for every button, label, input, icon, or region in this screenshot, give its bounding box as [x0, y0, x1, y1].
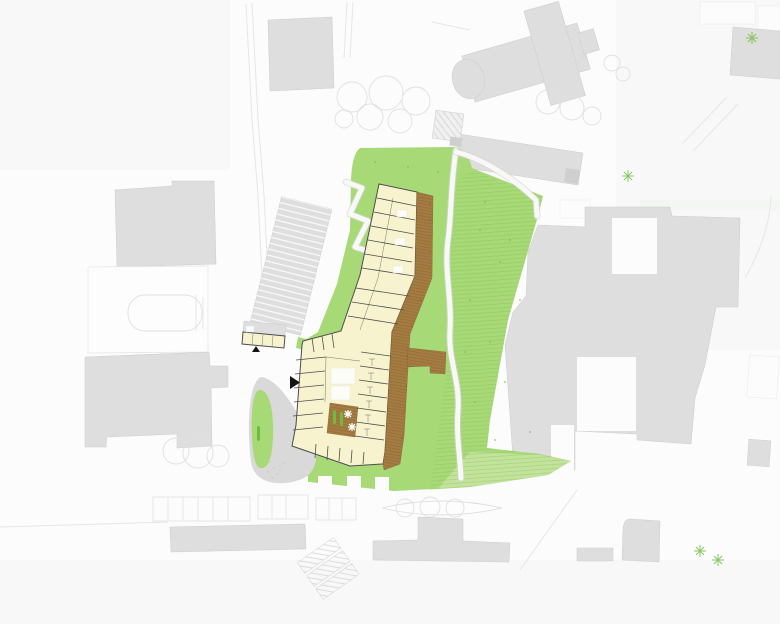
- parking-row: [153, 497, 250, 521]
- context-building: [115, 181, 216, 267]
- tree-icon: [388, 109, 412, 133]
- hall-patch: [331, 368, 355, 384]
- east-complex-courtyard: [612, 218, 657, 274]
- tree-icon: [560, 96, 584, 120]
- road-line: [344, 2, 353, 58]
- annex-building: [242, 321, 286, 348]
- parking-row: [258, 495, 308, 519]
- island-planting: [257, 426, 260, 441]
- parking-stall-rows: [153, 495, 356, 521]
- hall-patch: [331, 386, 350, 400]
- parking-row: [316, 498, 356, 520]
- context-building: [85, 352, 228, 448]
- terrace-planting: [340, 412, 343, 426]
- faint-building-outline: [747, 355, 780, 399]
- site-plan-canvas: [0, 0, 780, 624]
- road-line: [432, 22, 470, 30]
- context-building-small: [564, 168, 580, 184]
- context-building: [268, 17, 334, 91]
- tint-plate: [0, 560, 780, 624]
- tree-icon: [337, 82, 367, 112]
- faint-building-outline: [700, 2, 755, 24]
- lawn-notch: [347, 476, 361, 492]
- tint-plate: [0, 0, 230, 170]
- site-plan-drawing: [0, 0, 780, 624]
- tree-icon: [357, 104, 383, 130]
- context-building: [622, 519, 660, 562]
- road-line: [0, 522, 168, 527]
- road-line: [520, 490, 577, 570]
- hatched-court: [431, 110, 465, 147]
- lawn-notch: [318, 476, 332, 492]
- context-building-small: [577, 548, 613, 561]
- terrace-planting: [333, 410, 336, 424]
- lawn-notch: [375, 477, 389, 492]
- context-building-small: [747, 439, 771, 466]
- courtyard-building-outline: [88, 266, 208, 353]
- shed-small: [449, 136, 462, 147]
- tree-icon: [207, 445, 229, 467]
- tree-icon: [335, 110, 353, 128]
- entrance-arrow-icon: [252, 346, 260, 352]
- east-complex-courtyard: [577, 357, 636, 431]
- hedge-lens: [382, 501, 502, 515]
- striped-building: [250, 197, 332, 336]
- tree-icon: [583, 107, 601, 125]
- facade-stripes: [250, 197, 332, 336]
- context-building: [170, 524, 306, 552]
- context-building: [373, 517, 510, 562]
